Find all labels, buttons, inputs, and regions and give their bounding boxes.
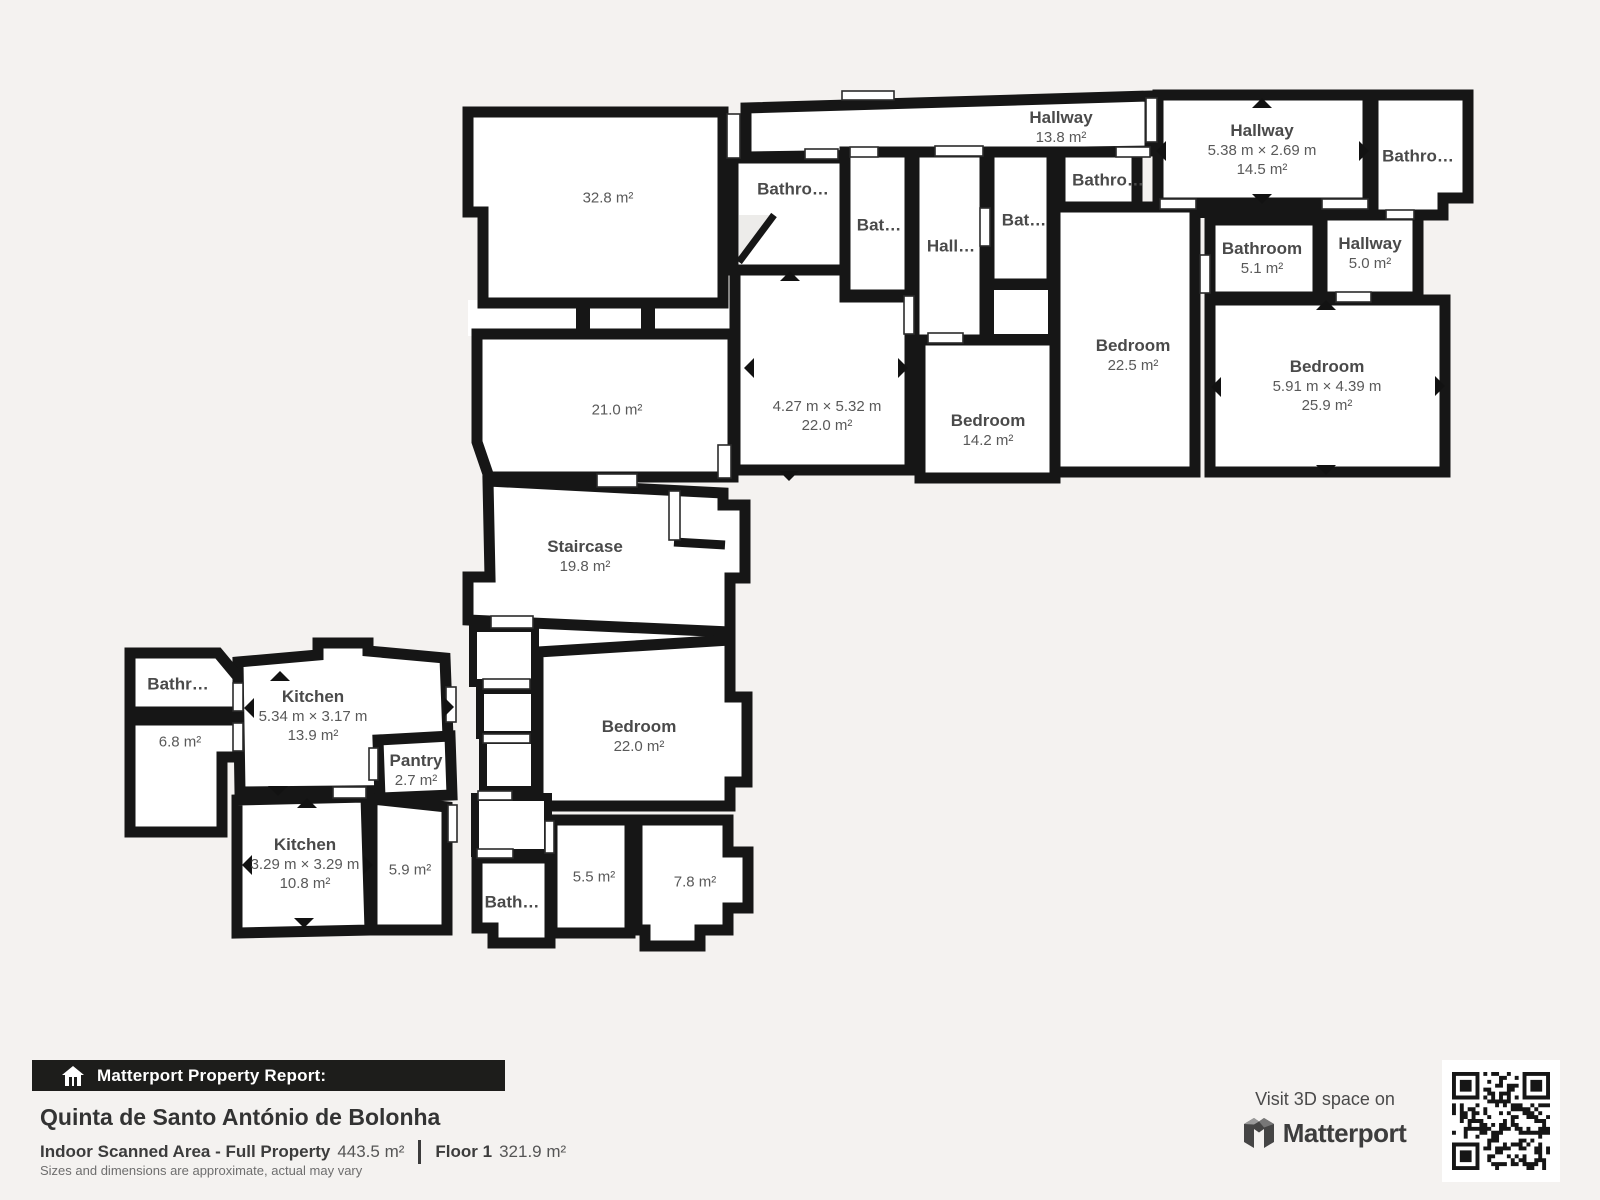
room-name: Bat…: [857, 214, 901, 235]
wall-stub: [576, 300, 590, 336]
room-name: Staircase: [547, 536, 623, 557]
room-name: Bathr…: [147, 673, 208, 694]
scanned-area-label: Indoor Scanned Area - Full Property: [40, 1142, 330, 1162]
door: [483, 679, 530, 689]
scan-info: Indoor Scanned Area - Full Property 443.…: [40, 1140, 566, 1164]
room-name: Kitchen: [251, 834, 360, 855]
door: [545, 821, 554, 853]
room-area: 6.8 m²: [159, 732, 202, 751]
room-area: 22.0 m²: [773, 416, 882, 435]
door: [491, 616, 533, 628]
room-area: 7.8 m²: [674, 872, 717, 891]
room-label-21-0: 21.0 m²: [592, 400, 643, 419]
door: [448, 805, 457, 842]
room-label-bathroom-right: Bathroom 5.1 m²: [1222, 238, 1302, 278]
report-bar-label: Matterport Property Report:: [97, 1066, 326, 1086]
door: [935, 146, 983, 156]
door: [718, 445, 731, 478]
report-bar: Matterport Property Report:: [32, 1060, 505, 1091]
room-shape-vestibule: [990, 286, 1052, 338]
room-name: Hallway: [1338, 233, 1401, 254]
door: [1116, 147, 1150, 157]
room-shape-corridor-a: [473, 628, 535, 683]
room-name: Bathro…: [757, 178, 829, 199]
room-area: 21.0 m²: [592, 400, 643, 419]
room-dims: 5.38 m × 2.69 m: [1208, 141, 1317, 160]
house-icon: [62, 1066, 84, 1086]
room-area: 5.5 m²: [573, 867, 616, 886]
room-area: 5.1 m²: [1222, 259, 1302, 278]
room-name: Bedroom: [1273, 356, 1382, 377]
room-label-32-8: 32.8 m²: [583, 188, 634, 207]
door: [928, 333, 963, 343]
door: [483, 734, 530, 743]
room-name: Bedroom: [602, 716, 677, 737]
door: [980, 208, 990, 246]
arrow-down-icon: [779, 471, 799, 481]
door: [233, 723, 243, 751]
room-label-bathroom-top-right: Bathro…: [1382, 145, 1454, 166]
door: [850, 147, 878, 157]
room-label-hallway-top: Hallway 13.8 m²: [1029, 107, 1092, 147]
divider: [418, 1140, 421, 1164]
room-name: Bath…: [485, 891, 540, 912]
room-shape-corridor-d: [475, 797, 548, 853]
room-label-bathroom-lower: Bath…: [485, 891, 540, 912]
room-area: 25.9 m²: [1273, 397, 1382, 416]
visit-text: Visit 3D space on: [1225, 1089, 1425, 1110]
door: [669, 491, 680, 540]
property-title: Quinta de Santo António de Bolonha: [40, 1104, 440, 1131]
room-area: 32.8 m²: [583, 188, 634, 207]
door: [805, 149, 838, 159]
door: [597, 474, 637, 487]
room-label-6-8: 6.8 m²: [159, 732, 202, 751]
room-shape-corridor-b: [480, 690, 535, 735]
door: [1322, 199, 1368, 209]
inner-wall: [674, 542, 725, 545]
room-label-kitchen-upper: Kitchen 5.34 m × 3.17 m 13.9 m²: [259, 686, 368, 746]
room-name: Bathroom: [1222, 238, 1302, 259]
door: [727, 114, 740, 158]
floor-value: 321.9 m²: [499, 1142, 566, 1162]
floor-label: Floor 1: [435, 1142, 492, 1162]
door: [333, 787, 366, 798]
room-label-bedroom-center: Bedroom 22.5 m²: [1096, 335, 1171, 375]
room-area: 14.2 m²: [951, 431, 1026, 450]
room-area: 5.0 m²: [1338, 254, 1401, 273]
room-label-bathroom-top-b: Bat…: [857, 214, 901, 235]
room-name: Bat…: [1002, 209, 1046, 230]
room-name: Bathro…: [1072, 169, 1144, 190]
room-area: 5.9 m²: [389, 860, 432, 879]
room-area: 22.0 m²: [602, 737, 677, 756]
door: [1200, 255, 1210, 293]
room-label-staircase: Staircase 19.8 m²: [547, 536, 623, 576]
room-name: Bedroom: [951, 410, 1026, 431]
matterport-logo: [1244, 1117, 1274, 1149]
qr-code: [1442, 1060, 1560, 1182]
room-dims: 5.34 m × 3.17 m: [259, 707, 368, 726]
room-area: 2.7 m²: [390, 771, 443, 790]
room-label-bathroom-top-c: Bat…: [1002, 209, 1046, 230]
room-dims: 5.91 m × 4.39 m: [1273, 377, 1382, 396]
room-label-5-9: 5.9 m²: [389, 860, 432, 879]
door: [233, 683, 243, 711]
matterport-wordmark: Matterport: [1283, 1118, 1407, 1149]
room-name: Hall…: [927, 235, 975, 256]
room-label-hallway-right: Hallway 5.38 m × 2.69 m 14.5 m²: [1208, 120, 1317, 180]
room-label-bedroom-right: Bedroom 5.91 m × 4.39 m 25.9 m²: [1273, 356, 1382, 416]
room-dims: 3.29 m × 3.29 m: [251, 855, 360, 874]
room-name: Pantry: [390, 750, 443, 771]
room-label-pantry: Pantry 2.7 m²: [390, 750, 443, 790]
room-shape-unnamed-top: [735, 270, 910, 470]
room-label-hallway-small-right: Hallway 5.0 m²: [1338, 233, 1401, 273]
room-area: 19.8 m²: [547, 557, 623, 576]
room-name: Bedroom: [1096, 335, 1171, 356]
room-label-hallway-mid: Hall…: [927, 235, 975, 256]
room-label-kitchen-lower: Kitchen 3.29 m × 3.29 m 10.8 m²: [251, 834, 360, 894]
matterport-cta: Visit 3D space on Matterport: [1225, 1089, 1425, 1149]
room-label-bathroom-left: Bathr…: [147, 673, 208, 694]
door: [842, 91, 894, 100]
door: [369, 748, 378, 780]
room-area: 13.9 m²: [259, 727, 368, 746]
room-label-bathroom-top-a: Bathro…: [757, 178, 829, 199]
wall-stub: [641, 300, 655, 336]
room-area: 22.5 m²: [1096, 356, 1171, 375]
room-name: Kitchen: [259, 686, 368, 707]
door: [904, 296, 914, 334]
room-label-bedroom-mid: Bedroom 14.2 m²: [951, 410, 1026, 450]
door: [477, 849, 513, 858]
door: [1160, 199, 1196, 209]
room-area: 10.8 m²: [251, 875, 360, 894]
room-name: Bathro…: [1382, 145, 1454, 166]
room-name: Hallway: [1208, 120, 1317, 141]
door: [1386, 210, 1414, 219]
room-label-7-8: 7.8 m²: [674, 872, 717, 891]
room-label-5-5: 5.5 m²: [573, 867, 616, 886]
scanned-area-value: 443.5 m²: [337, 1142, 404, 1162]
room-area: 13.8 m²: [1029, 128, 1092, 147]
room-label-bedroom-lower: Bedroom 22.0 m²: [602, 716, 677, 756]
room-label-unnamed-top: 4.27 m × 5.32 m 22.0 m²: [773, 397, 882, 435]
room-shape-corridor-c: [483, 740, 535, 790]
room-name: Hallway: [1029, 107, 1092, 128]
room-dims: 4.27 m × 5.32 m: [773, 397, 882, 416]
door: [1336, 292, 1371, 302]
door: [1146, 98, 1157, 142]
room-label-bathroom-top-d: Bathro…: [1072, 169, 1144, 190]
door: [478, 791, 512, 800]
disclaimer-text: Sizes and dimensions are approximate, ac…: [40, 1163, 362, 1178]
room-area: 14.5 m²: [1208, 161, 1317, 180]
